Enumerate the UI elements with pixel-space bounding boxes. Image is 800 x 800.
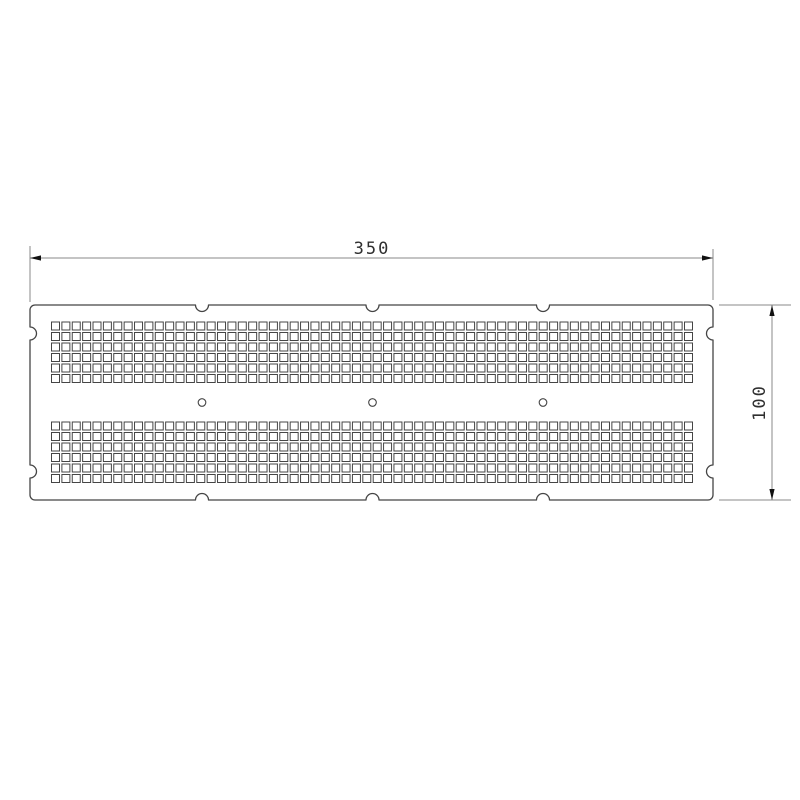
mounting-hole [539, 399, 547, 407]
arrowhead-bottom-icon [769, 489, 774, 500]
arrowhead-left-icon [30, 255, 41, 260]
dimension-width-label: 350 [354, 239, 391, 259]
dimension-height: 100 [719, 305, 791, 500]
dimension-width: 350 [30, 239, 713, 302]
plate [30, 305, 713, 500]
drawing-canvas: 350 100 [0, 0, 800, 800]
dimension-height-label: 100 [750, 384, 770, 421]
technical-drawing-svg: 350 100 [0, 0, 800, 800]
mounting-hole [198, 399, 206, 407]
mounting-hole [369, 399, 377, 407]
arrowhead-top-icon [769, 305, 774, 316]
arrowhead-right-icon [702, 255, 713, 260]
